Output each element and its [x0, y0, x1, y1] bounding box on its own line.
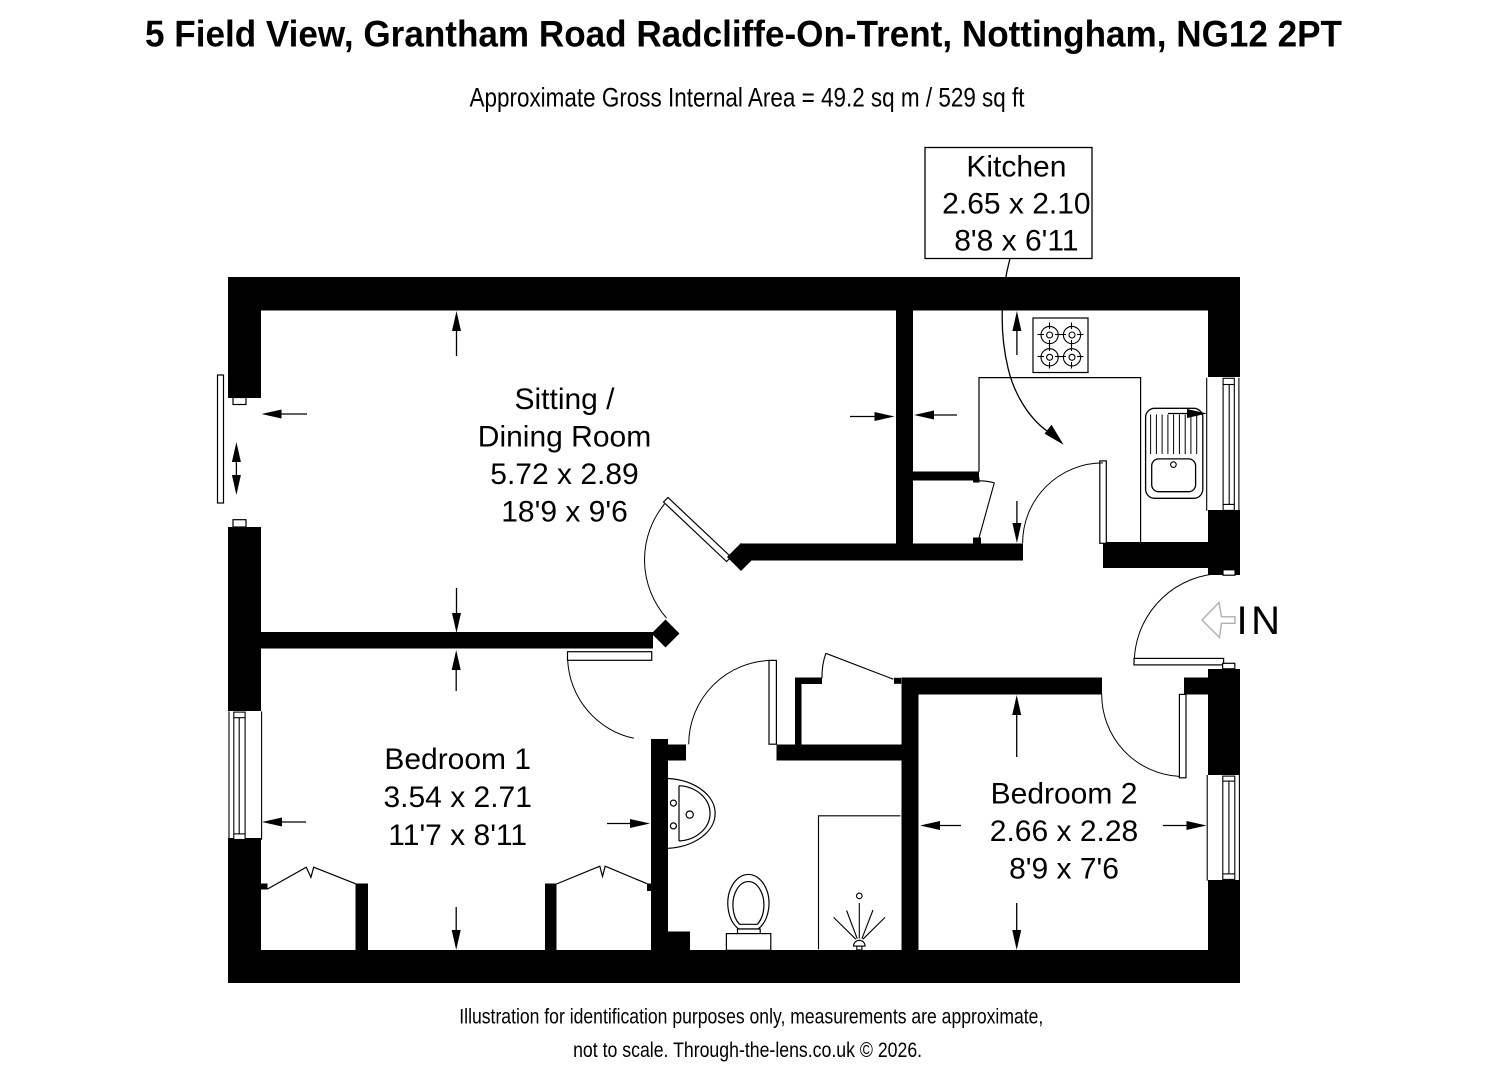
svg-text:not to scale. Through-the-lens: not to scale. Through-the-lens.co.uk © 2… [573, 1039, 922, 1062]
svg-text:Illustration for identificatio: Illustration for identification purposes… [459, 1006, 1043, 1029]
svg-text:5.72 x 2.89: 5.72 x 2.89 [490, 458, 638, 491]
svg-text:IN: IN [1237, 599, 1284, 643]
svg-text:Dining Room: Dining Room [478, 421, 651, 454]
svg-text:Approximate Gross Internal Are: Approximate Gross Internal Area = 49.2 s… [470, 82, 1025, 112]
svg-text:8'8 x 6'11: 8'8 x 6'11 [954, 225, 1078, 258]
svg-text:5 Field View, Grantham Road Ra: 5 Field View, Grantham Road Radcliffe-On… [145, 14, 1342, 55]
svg-text:Bedroom 2: Bedroom 2 [991, 778, 1138, 811]
svg-text:2.65 x 2.10: 2.65 x 2.10 [942, 188, 1090, 221]
svg-text:11'7 x 8'11: 11'7 x 8'11 [388, 819, 527, 852]
svg-text:8'9 x 7'6: 8'9 x 7'6 [1009, 853, 1119, 886]
svg-text:3.54 x 2.71: 3.54 x 2.71 [383, 781, 531, 814]
svg-text:2.66 x 2.28: 2.66 x 2.28 [990, 815, 1138, 848]
svg-text:Kitchen: Kitchen [966, 151, 1066, 184]
svg-text:Bedroom 1: Bedroom 1 [384, 743, 531, 776]
svg-text:Sitting /: Sitting / [514, 383, 615, 416]
svg-text:18'9 x 9'6: 18'9 x 9'6 [501, 495, 628, 528]
